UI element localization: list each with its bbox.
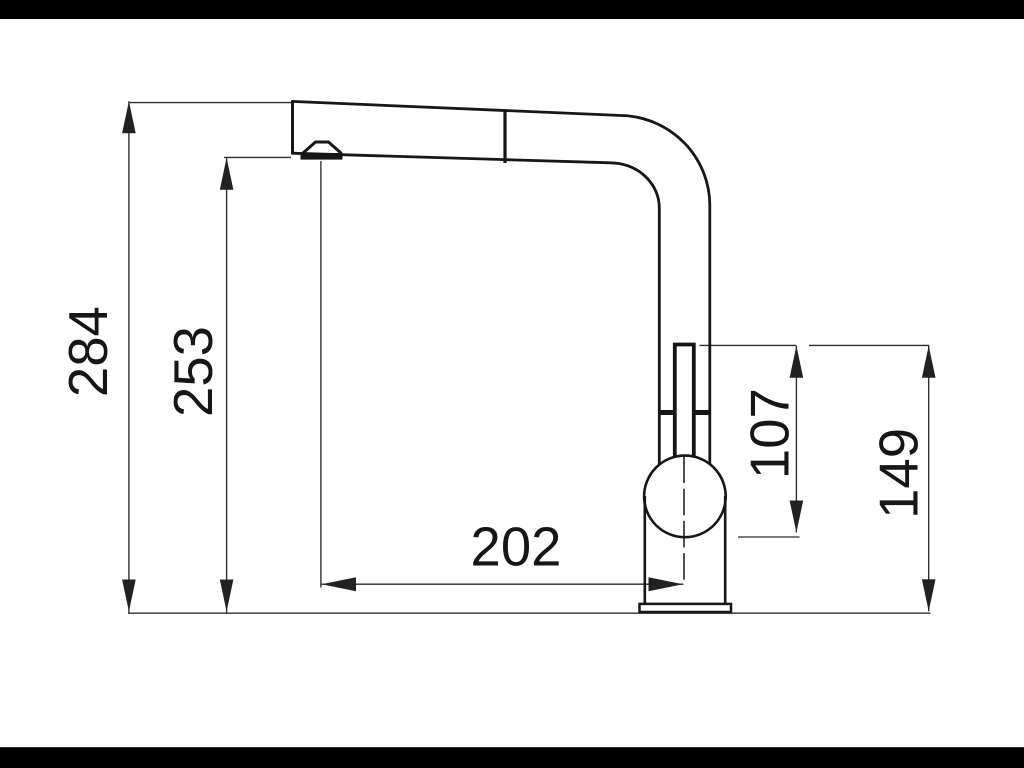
svg-text:107: 107 bbox=[739, 388, 800, 479]
svg-text:284: 284 bbox=[58, 306, 119, 397]
svg-text:202: 202 bbox=[471, 516, 562, 577]
svg-text:253: 253 bbox=[163, 326, 224, 417]
svg-text:149: 149 bbox=[869, 428, 930, 519]
